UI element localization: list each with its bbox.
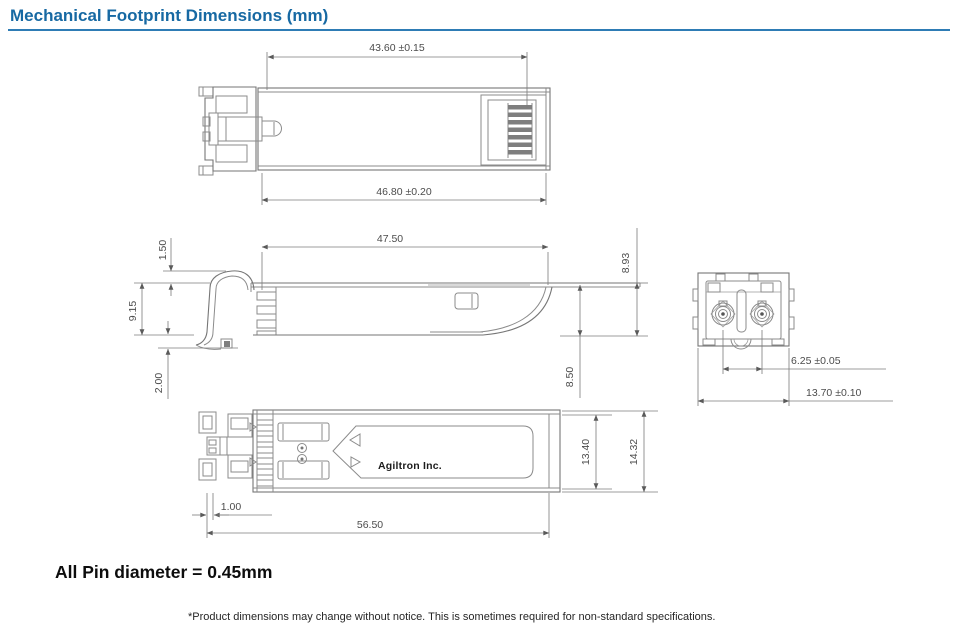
dim-label-46-80: 46.80 ±0.20 bbox=[376, 186, 432, 198]
side-view: 47.50 1.50 9.15 2.00 8.50 8.93 bbox=[127, 228, 648, 399]
disclaimer-note: *Product dimensions may change without n… bbox=[188, 611, 715, 623]
end-view: 6.25 ±0.05 13.70 ±0.10 bbox=[693, 273, 893, 406]
dim-label-9-15: 9.15 bbox=[127, 301, 139, 322]
bail-pivot-pin bbox=[262, 121, 282, 136]
dim-label-6-25: 6.25 ±0.05 bbox=[791, 355, 841, 367]
dim-label-2-00: 2.00 bbox=[153, 373, 165, 394]
dim-label-8-50: 8.50 bbox=[564, 367, 576, 388]
dim-label-13-40: 13.40 bbox=[580, 439, 592, 465]
fiber-ferrule-right bbox=[750, 301, 774, 327]
dim-label-1-50: 1.50 bbox=[157, 240, 169, 261]
dim-label-1-00: 1.00 bbox=[221, 501, 242, 513]
bottom-view: Agiltron Inc. 13.40 14.32 1.00 56.50 bbox=[192, 410, 658, 538]
triangle-marker-right-icon bbox=[351, 457, 360, 467]
dim-label-43-60: 43.60 ±0.15 bbox=[369, 42, 425, 54]
mechanical-drawing: 43.60 ±0.15 46.80 ±0.20 bbox=[0, 0, 960, 633]
top-view: 43.60 ±0.15 46.80 ±0.20 bbox=[199, 42, 550, 205]
triangle-marker-left-icon bbox=[350, 434, 360, 446]
dim-label-13-70: 13.70 ±0.10 bbox=[806, 387, 862, 399]
pin-diameter-note: All Pin diameter = 0.45mm bbox=[55, 562, 272, 583]
dim-label-47-50: 47.50 bbox=[377, 233, 403, 245]
front-latch-top-view bbox=[199, 87, 282, 175]
rear-fillet bbox=[483, 287, 552, 335]
dim-label-14-32: 14.32 bbox=[628, 439, 640, 465]
dim-label-56-50: 56.50 bbox=[357, 519, 383, 531]
vent-slot-upper bbox=[278, 423, 329, 441]
datasheet-page: Mechanical Footprint Dimensions (mm) bbox=[0, 0, 960, 633]
brand-label: Agiltron Inc. bbox=[378, 460, 442, 472]
lc-connector-detail bbox=[199, 412, 256, 480]
dim-label-8-93: 8.93 bbox=[620, 253, 632, 274]
center-divider bbox=[737, 290, 746, 332]
emi-finger-strip bbox=[257, 410, 273, 492]
fiber-ferrule-left bbox=[711, 301, 735, 327]
edge-connector-detail bbox=[481, 95, 546, 165]
shell-slot bbox=[455, 293, 478, 309]
